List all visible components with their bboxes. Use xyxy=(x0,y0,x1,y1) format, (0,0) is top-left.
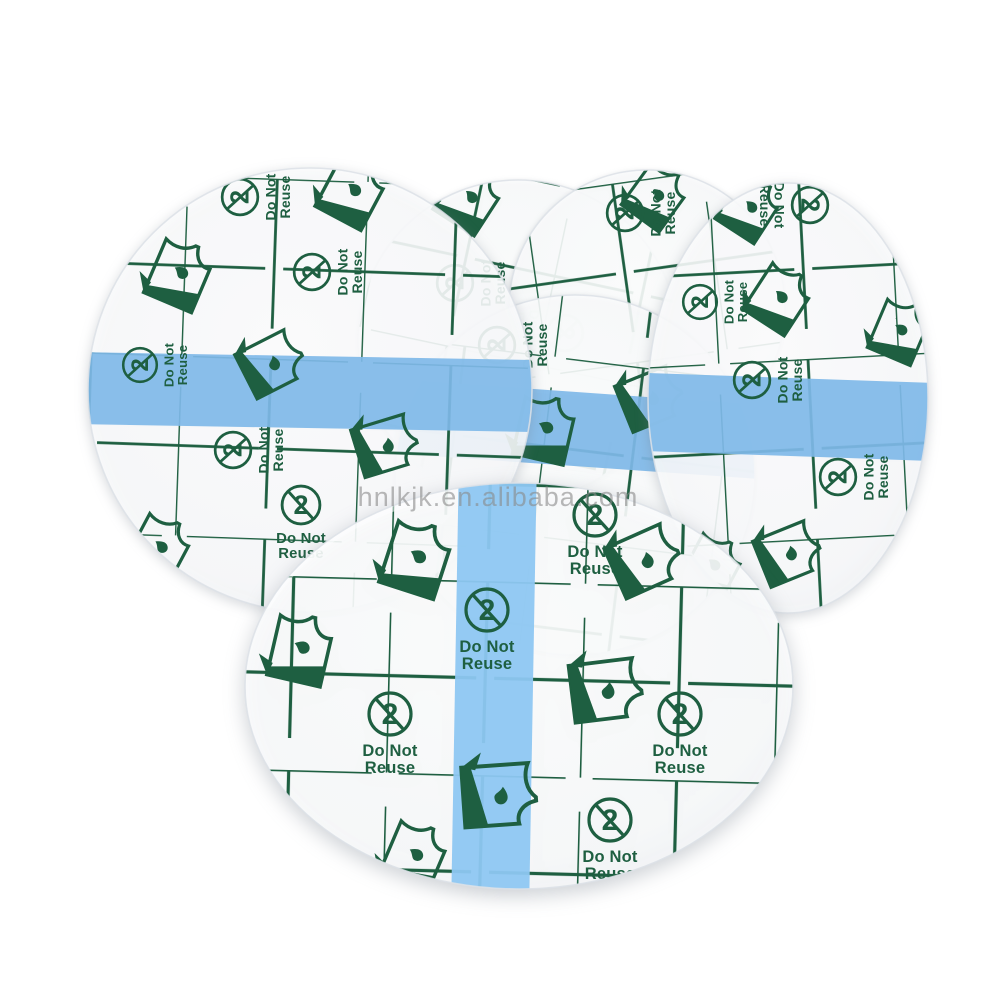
product-photo: 2 Do Not Reuse xyxy=(0,0,1000,1000)
watermark-text: hnlkjk.en.alibaba.com xyxy=(358,482,639,512)
blue-stripe xyxy=(451,467,537,902)
product-image-canvas: 2 Do Not Reuse xyxy=(0,0,1000,1000)
